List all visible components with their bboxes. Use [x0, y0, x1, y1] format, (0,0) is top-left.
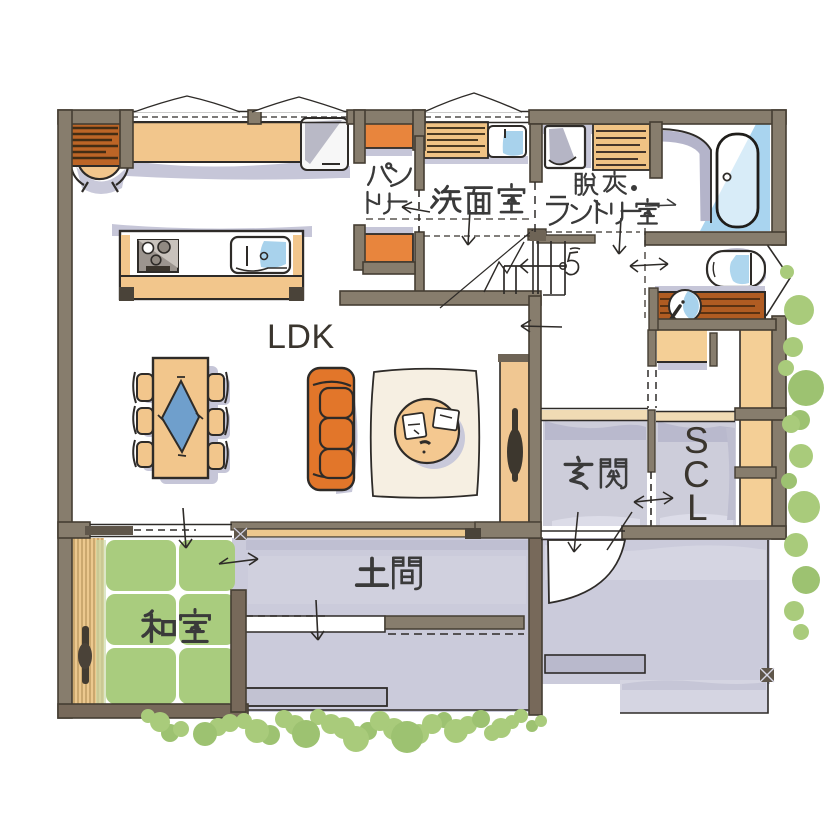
svg-text:LDK: LDK — [267, 318, 335, 356]
svg-text:L: L — [687, 487, 708, 528]
